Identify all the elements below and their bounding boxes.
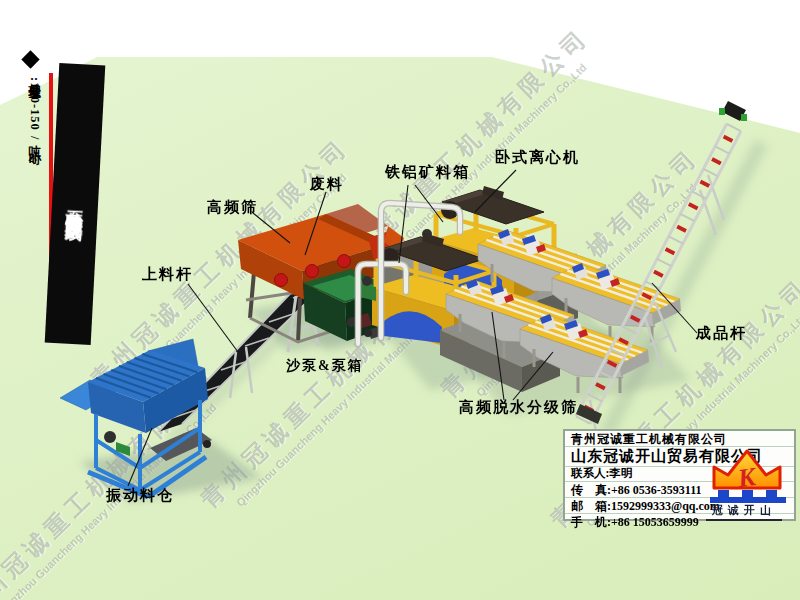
company-logo: K — [702, 446, 792, 504]
label-waste: 废料 — [310, 175, 344, 194]
capacity-note: 处理量:100-150 吨/小时 — [26, 74, 43, 314]
production-line-poster: 青州冠诚重工机械有限公司 Qingzhou Guancheng Heavy In… — [0, 0, 800, 600]
company-name-1: 青州冠诚重工机械有限公司 — [565, 431, 794, 447]
label-product-conveyor: 成品杆 — [696, 324, 747, 343]
label-sand-pump-box: 沙泵&泵箱 — [286, 357, 364, 375]
label-vibrating-hopper: 振动料仓 — [106, 486, 174, 505]
label-feeding-conveyor: 上料杆 — [142, 265, 193, 284]
label-horizontal-centrifuge: 卧式离心机 — [495, 148, 580, 167]
page-title: 石英砂除铁除铝洗沙脱水生产线 — [63, 196, 87, 211]
label-dewatering-screen: 高频脱水分级筛 — [459, 398, 578, 417]
logo-text: 冠诚开山 — [706, 503, 782, 521]
label-high-frequency-screen: 高频筛 — [207, 198, 258, 217]
label-iron-aluminum-ore-box: 铁铝矿料箱 — [385, 163, 470, 182]
